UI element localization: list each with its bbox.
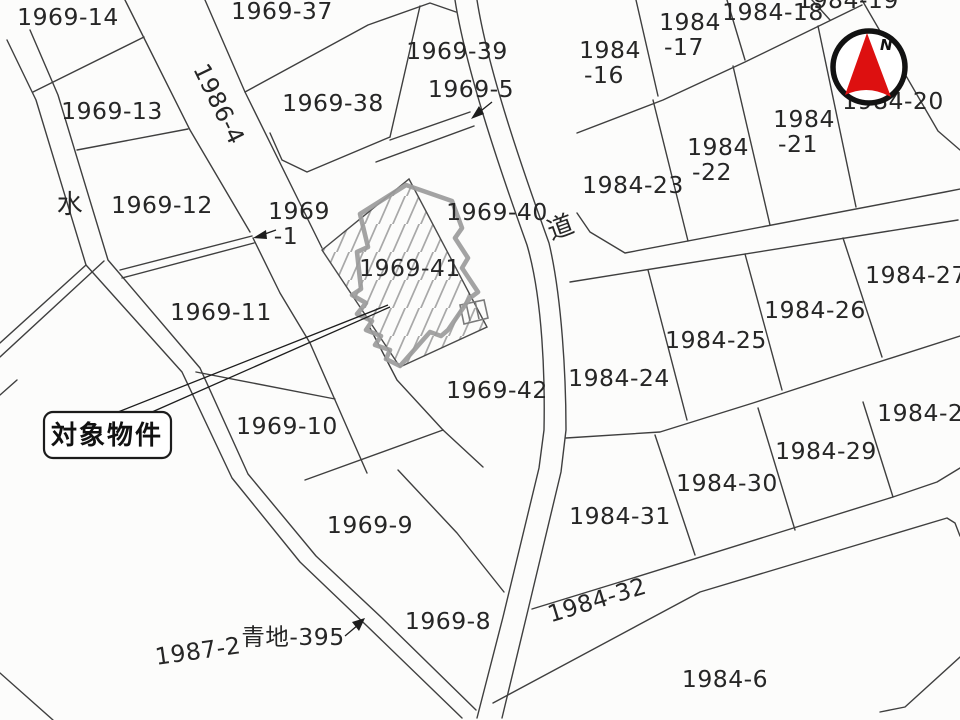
parcel-label-1969-41: 1969-41 xyxy=(359,254,461,282)
compass-n-label: N xyxy=(880,36,893,54)
cadastral-map: 1969-141969-371969-391969-51984-161984-1… xyxy=(0,0,960,720)
compass: N xyxy=(833,31,905,103)
map-canvas: 1969-141969-371969-391969-51984-161984-1… xyxy=(0,0,960,720)
parcel-label-1969-10: 1969-10 xyxy=(236,412,338,440)
parcel-label-1969-37: 1969-37 xyxy=(231,0,333,25)
parcel-label-1984-31: 1984-31 xyxy=(569,502,671,530)
parcel-label-1984-23: 1984-23 xyxy=(582,171,684,199)
parcel-label-1969-42: 1969-42 xyxy=(446,376,548,404)
parcel-label-1984-28: 1984-28 xyxy=(877,399,960,427)
parcel-label-1984-22: 1984-22 xyxy=(687,133,749,186)
parcel-label-1969-5: 1969-5 xyxy=(428,75,514,103)
parcel-label-1969-9: 1969-9 xyxy=(327,511,413,539)
parcel-label-1969-1: 1969-1 xyxy=(268,197,330,250)
parcel-label-1969-12: 1969-12 xyxy=(111,191,213,219)
parcel-label-1984-19: 1984-19 xyxy=(797,0,899,14)
parcel-label-1984-25: 1984-25 xyxy=(665,326,767,354)
parcel-label-1984-24: 1984-24 xyxy=(568,364,670,392)
parcel-label-1984-17: 1984-17 xyxy=(659,8,721,61)
parcel-label-1984-16: 1984-16 xyxy=(579,36,641,89)
parcel-label-1969-8: 1969-8 xyxy=(405,607,491,635)
parcel-label-1969-38: 1969-38 xyxy=(282,89,384,117)
parcel-label-1969-13: 1969-13 xyxy=(61,97,163,125)
parcel-label-1984-29: 1984-29 xyxy=(775,437,877,465)
parcel-label-1984-30: 1984-30 xyxy=(676,469,778,497)
arrow-1969-1 xyxy=(253,230,267,239)
parcel-label-1984-32: 1984-32 xyxy=(544,572,649,629)
parcel-label-1969-11: 1969-11 xyxy=(170,298,272,326)
parcel-label-aochi-395: 青地-395 xyxy=(241,623,344,651)
parcel-label-1984-27: 1984-27 xyxy=(865,261,960,289)
target-callout: 対象物件 xyxy=(44,412,171,458)
parcel-label-1986-4: 1986-4 xyxy=(188,59,251,149)
parcel-label-1969-40: 1969-40 xyxy=(446,198,548,226)
parcel-label-water: 水 xyxy=(57,190,84,220)
parcel-label-1984-6: 1984-6 xyxy=(682,665,768,693)
arrow-1969-5 xyxy=(471,106,484,119)
target-callout-label: 対象物件 xyxy=(51,420,163,451)
parcel-label-1969-14: 1969-14 xyxy=(17,3,119,31)
parcel-label-1984-26: 1984-26 xyxy=(764,296,866,324)
parcel-label-1987-2: 1987-2 xyxy=(153,631,242,671)
parcel-label-1969-39: 1969-39 xyxy=(406,37,508,65)
parcel-label-1984-21: 1984-21 xyxy=(773,105,835,158)
